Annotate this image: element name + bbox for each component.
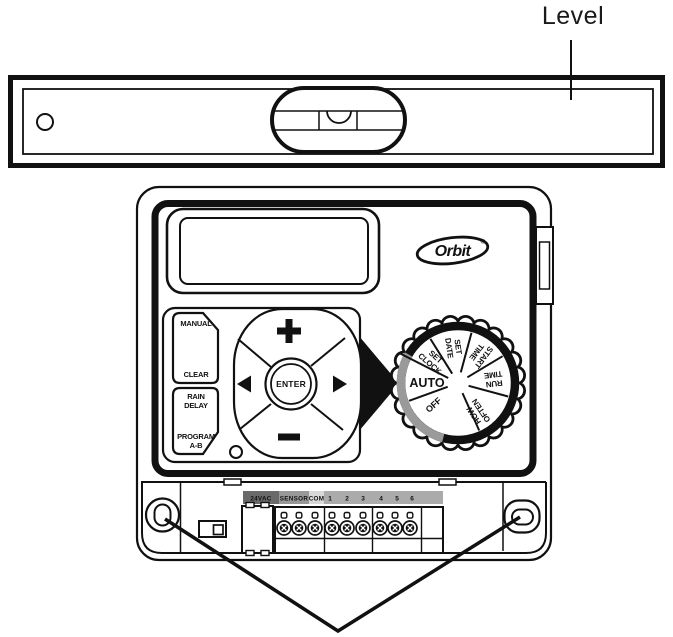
- zone-terminal-block: [275, 507, 443, 553]
- dpad: ENTER: [234, 309, 361, 458]
- terminal-screws[interactable]: [277, 513, 417, 536]
- manual-illustration: Level: [0, 0, 673, 637]
- minus-icon: [278, 434, 300, 441]
- rain-delay-label-line2: DELAY: [184, 401, 208, 410]
- zone-3-label: 3: [361, 496, 365, 503]
- power-terminal-label: 24VAC: [250, 496, 271, 503]
- plus-icon-bar: [286, 319, 293, 343]
- lcd-display: [167, 209, 379, 293]
- mounting-hole-right: [505, 501, 540, 533]
- manual-label: MANUAL: [180, 319, 212, 328]
- zone-5-label: 5: [395, 496, 399, 503]
- sensor-terminal-label: SENSOR: [280, 496, 309, 503]
- bay-notch-left: [224, 479, 241, 485]
- power-terminal-block: [242, 503, 273, 556]
- registered-mark: ®: [481, 238, 486, 246]
- bay-notch-right: [439, 479, 456, 485]
- level-hang-hole: [37, 114, 53, 130]
- level-vial: [272, 88, 405, 152]
- svg-text:AUTO: AUTO: [409, 376, 444, 390]
- level-callout-label: Level: [542, 2, 604, 30]
- side-latch-tab: [536, 227, 553, 304]
- level-tool: [11, 78, 663, 166]
- enter-label: ENTER: [276, 379, 306, 389]
- program-label-line1: PROGRAM: [177, 432, 215, 441]
- indicator-pinhole: [230, 446, 242, 458]
- orbit-logo-text: Orbit: [435, 243, 472, 260]
- dial-position-auto: AUTO: [409, 376, 444, 390]
- zone-1-label: 1: [328, 496, 332, 503]
- zone-4-label: 4: [379, 496, 383, 503]
- clear-label: CLEAR: [184, 370, 210, 379]
- enter-button[interactable]: ENTER: [266, 359, 317, 410]
- program-label-line2: A-B: [190, 441, 204, 450]
- terminal-label-strip: 24VAC SENSOR COM 1 2 3 4 5 6: [243, 491, 443, 504]
- zone-6-label: 6: [410, 496, 414, 503]
- rain-delay-label-line1: RAIN: [187, 392, 205, 401]
- zone-2-label: 2: [345, 496, 349, 503]
- common-terminal-label: COM: [309, 496, 325, 503]
- timer-device: 24VAC SENSOR COM 1 2 3 4 5 6: [137, 187, 553, 560]
- slide-switch[interactable]: [199, 521, 226, 537]
- decrease-button[interactable]: [278, 434, 300, 441]
